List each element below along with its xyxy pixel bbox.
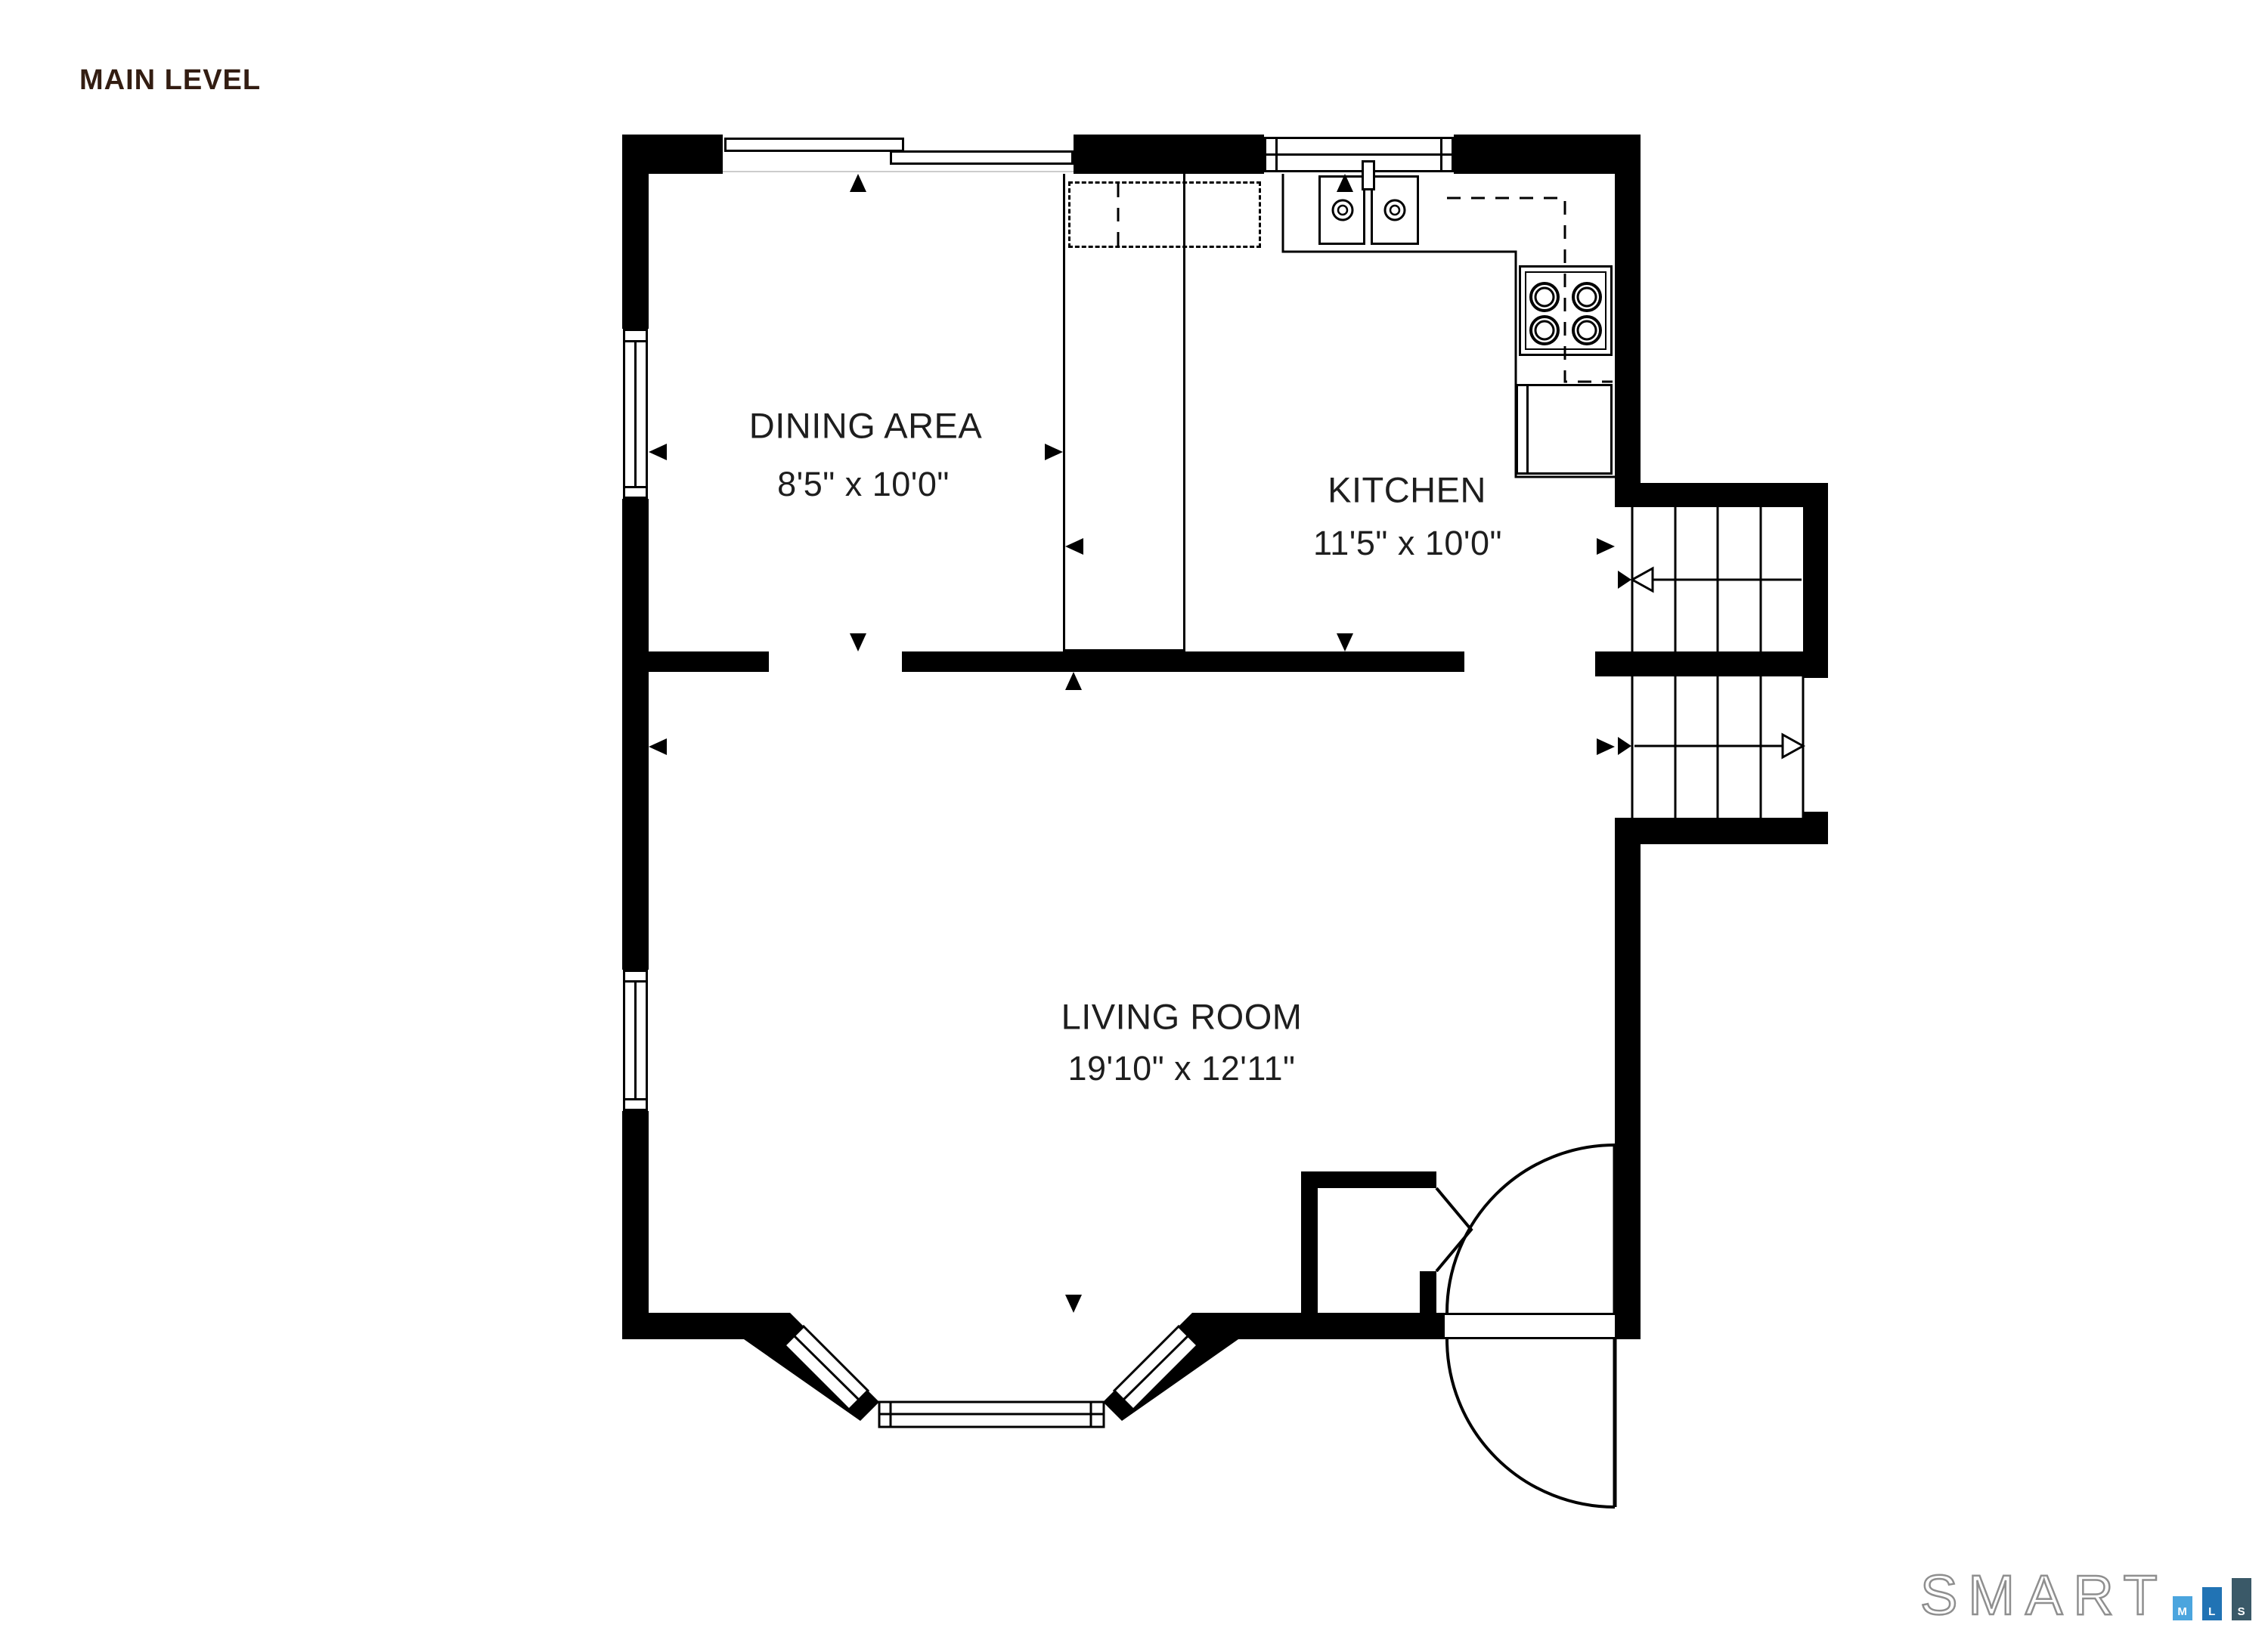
sink-drain-icon [1338,206,1347,215]
dim-arrow-left-icon [1065,538,1083,555]
plan-overlay [0,0,2268,1634]
room-label-living: LIVING ROOM [1061,996,1303,1038]
logo-bar-s: S [2232,1578,2251,1620]
dim-arrow-right-icon [1045,444,1063,460]
logo-bars-icon: M L S [2173,1578,2251,1620]
room-dimensions-kitchen: 11'5" x 10'0" [1313,524,1502,563]
sink-drain-icon [1385,200,1405,220]
dim-arrow-down-icon [850,633,866,651]
stair-arrow-down-icon [1618,735,1803,757]
sink-drain-icon [1390,206,1399,215]
dim-arrow-right-icon [1597,738,1615,755]
floor-plan: MAIN LEVEL DINING AREA 8'5" x 10'0" KITC… [0,0,2268,1634]
dim-arrow-down-icon [1337,633,1353,651]
closet-bifold-door [1436,1188,1471,1271]
smartmls-logo: SMART M L S [1920,1548,2260,1620]
logo-bar-l: L [2202,1587,2222,1620]
sink-drain-icon [1333,200,1352,220]
dim-arrow-up-icon [1065,672,1082,690]
stair-arrow-up-icon [1618,568,1802,591]
bay-center-window [879,1402,1104,1427]
dim-arrow-left-icon [649,738,667,755]
room-dimensions-living: 19'10" x 12'11" [1067,1049,1295,1088]
dim-arrow-up-icon [850,174,866,192]
dimension-arrows [649,174,1615,1313]
dim-arrow-down-icon [1065,1295,1082,1313]
room-label-kitchen: KITCHEN [1328,469,1486,511]
logo-brand-text: SMART [1920,1571,2168,1620]
upper-cabinet-right [1447,198,1613,382]
room-dimensions-dining: 8'5" x 10'0" [777,465,950,504]
page-title: MAIN LEVEL [79,64,261,97]
dim-arrow-up-icon [1337,174,1353,192]
entry-door-outer [1447,1339,1615,1507]
dim-arrow-right-icon [1597,538,1615,555]
dim-arrow-left-icon [649,444,667,460]
room-label-dining: DINING AREA [749,405,982,447]
logo-bar-m: M [2173,1596,2192,1620]
